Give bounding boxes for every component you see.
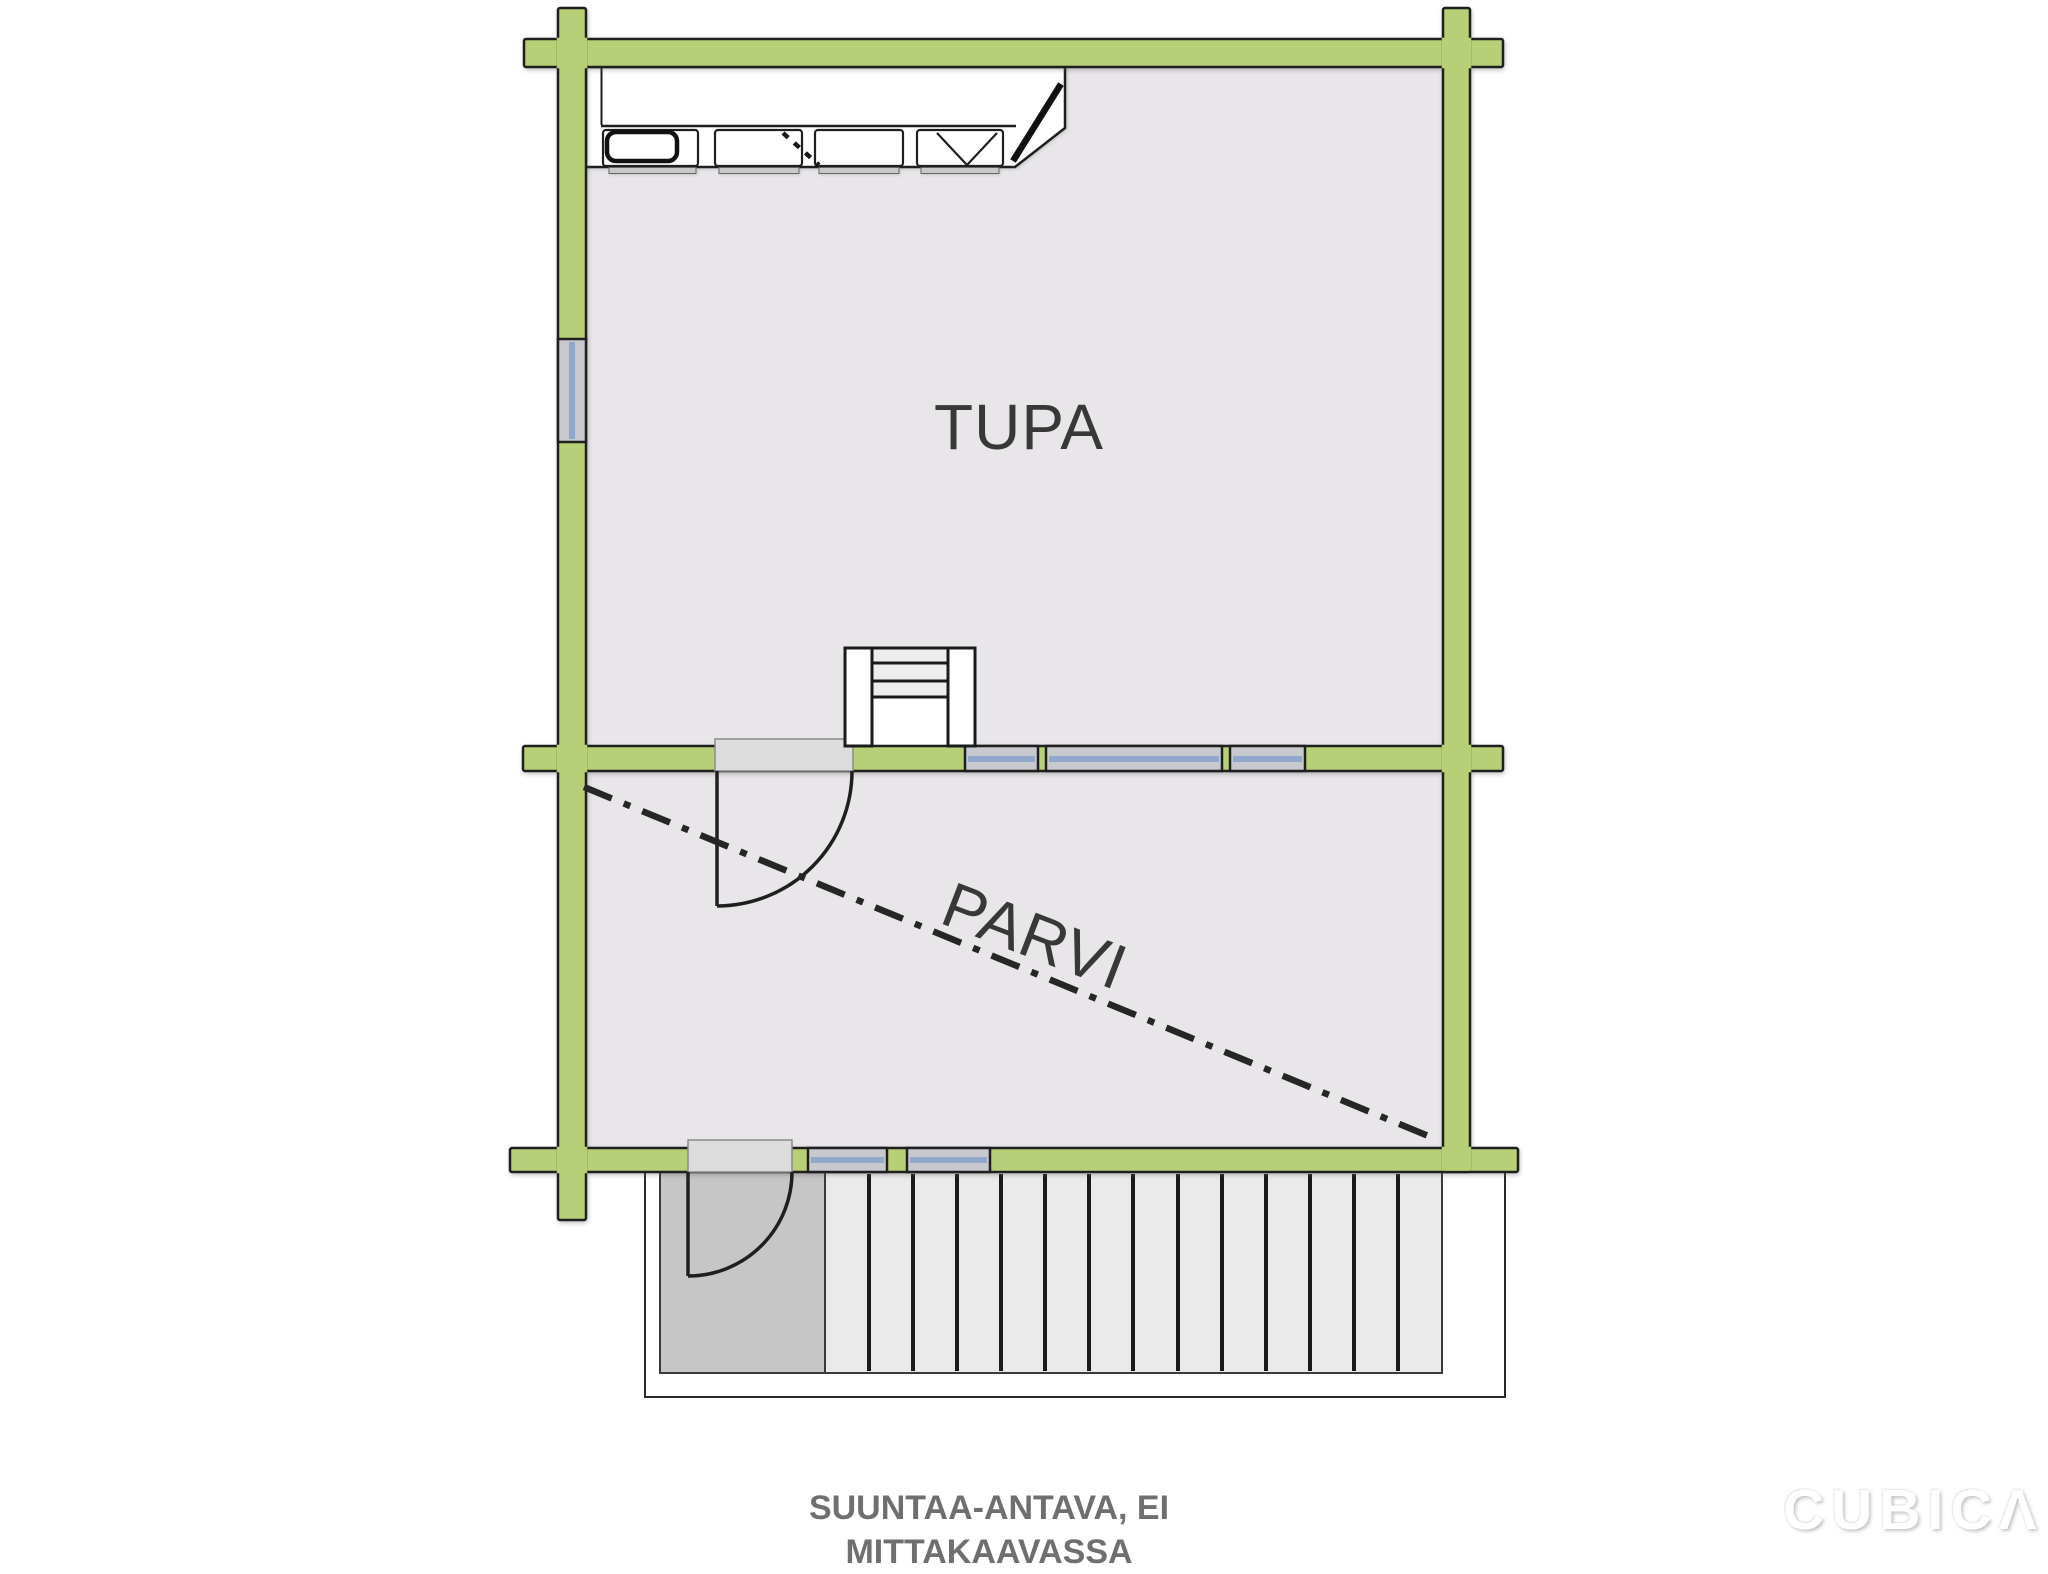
- wall-joint-patch: [1442, 38, 1472, 69]
- room-interior-area: [586, 67, 1443, 1148]
- wall-top: [524, 39, 1503, 67]
- room-label-tupa: TUPA: [869, 392, 1169, 462]
- kitchen-cabinet-3: [815, 130, 903, 166]
- door-threshold-middle: [715, 739, 853, 771]
- wall-bottom: [510, 1148, 1518, 1172]
- stairs-left-stringer: [845, 648, 872, 746]
- wall-joint-patch: [557, 745, 588, 773]
- disclaimer-caption: SUUNTAA-ANTAVA, EI MITTAKAAVASSA: [689, 1486, 1289, 1530]
- wall-left: [558, 8, 586, 1220]
- porch-landing: [660, 1172, 825, 1373]
- kitchen-plinth: [719, 168, 799, 174]
- wall-joint-patch: [1442, 1147, 1472, 1171]
- kitchen-plinth: [921, 168, 999, 174]
- stairs-open-well: [874, 699, 947, 745]
- wall-joint-patch: [557, 38, 588, 69]
- window-middle-1-glassline: [968, 756, 1035, 762]
- stairs-to-loft: [845, 648, 975, 746]
- porch: [645, 1172, 1505, 1397]
- window-middle-3-glassline: [1233, 756, 1302, 762]
- kitchen-cabinet-4: [917, 130, 1003, 166]
- wall-joint-patch: [1442, 745, 1472, 773]
- kitchen-plinth: [609, 168, 696, 174]
- window-bottom-1-glassline: [811, 1157, 884, 1163]
- kitchen-counter: [586, 67, 1065, 174]
- window-bottom-2-glassline: [910, 1157, 987, 1163]
- stairs-right-stringer: [948, 648, 975, 746]
- wall-joint-patch: [557, 1147, 588, 1174]
- wall-right: [1443, 8, 1470, 1172]
- kitchen-plinth: [819, 168, 899, 174]
- door-threshold-entrance: [688, 1140, 792, 1172]
- stairs-treads: [872, 648, 948, 697]
- window-left-glassline: [569, 342, 575, 439]
- floorplan-canvas: [0, 0, 2048, 1536]
- floorplan-page: { "plan": { "rooms": [ { "label": "TUPA"…: [0, 0, 2048, 1536]
- kitchen-sink: [607, 132, 677, 161]
- cubicasa-watermark: CUBICΛ: [1783, 1478, 2044, 1542]
- window-middle-2-glassline: [1049, 756, 1219, 762]
